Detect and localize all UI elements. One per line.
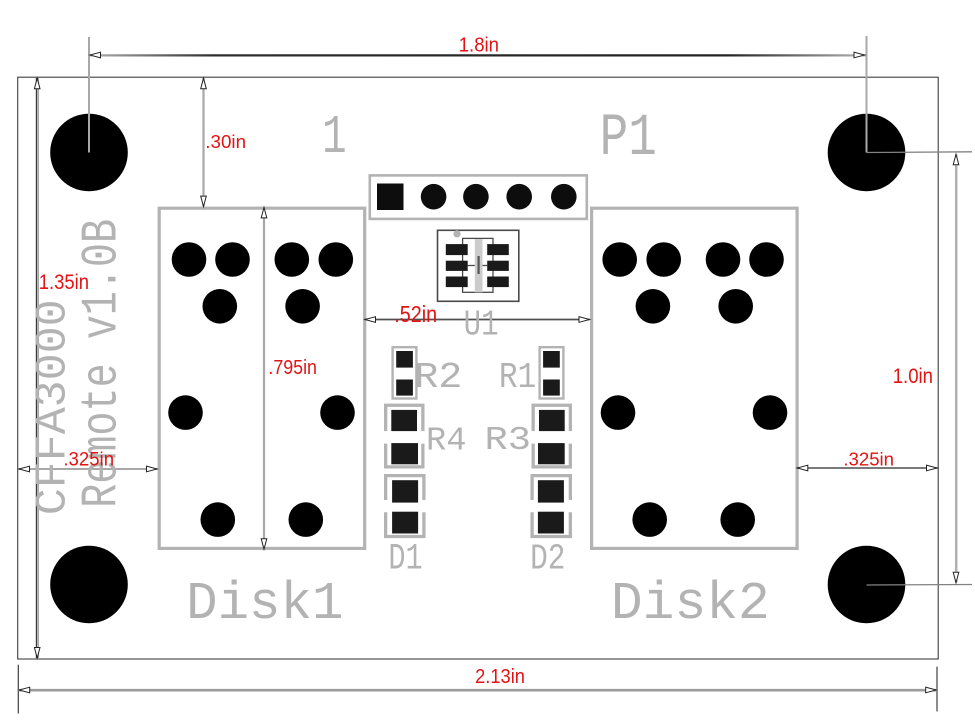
svg-text:D2: D2 (530, 539, 565, 580)
svg-text:R4: R4 (426, 423, 466, 461)
svg-text:Disk1: Disk1 (186, 574, 343, 634)
svg-text:.325in: .325in (843, 448, 894, 469)
svg-text:.795in: .795in (268, 357, 317, 379)
svg-text:.325in: .325in (63, 449, 114, 471)
svg-text:U1: U1 (464, 305, 499, 346)
svg-text:R1: R1 (499, 358, 536, 399)
svg-text:R2: R2 (414, 358, 462, 398)
svg-text:D1: D1 (388, 539, 422, 580)
svg-text:1: 1 (322, 108, 346, 169)
svg-text:1.8in: 1.8in (459, 34, 499, 57)
svg-text:.52in: .52in (394, 301, 437, 327)
svg-text:R3: R3 (484, 422, 531, 460)
svg-text:CFFA3000: CFFA3000 (29, 299, 78, 515)
svg-text:1.35in: 1.35in (39, 271, 89, 295)
svg-text:1.0in: 1.0in (893, 365, 933, 389)
svg-text:P1: P1 (600, 106, 657, 173)
svg-text:Disk2: Disk2 (611, 574, 770, 634)
svg-text:.30in: .30in (205, 131, 246, 152)
svg-text:2.13in: 2.13in (475, 666, 525, 688)
